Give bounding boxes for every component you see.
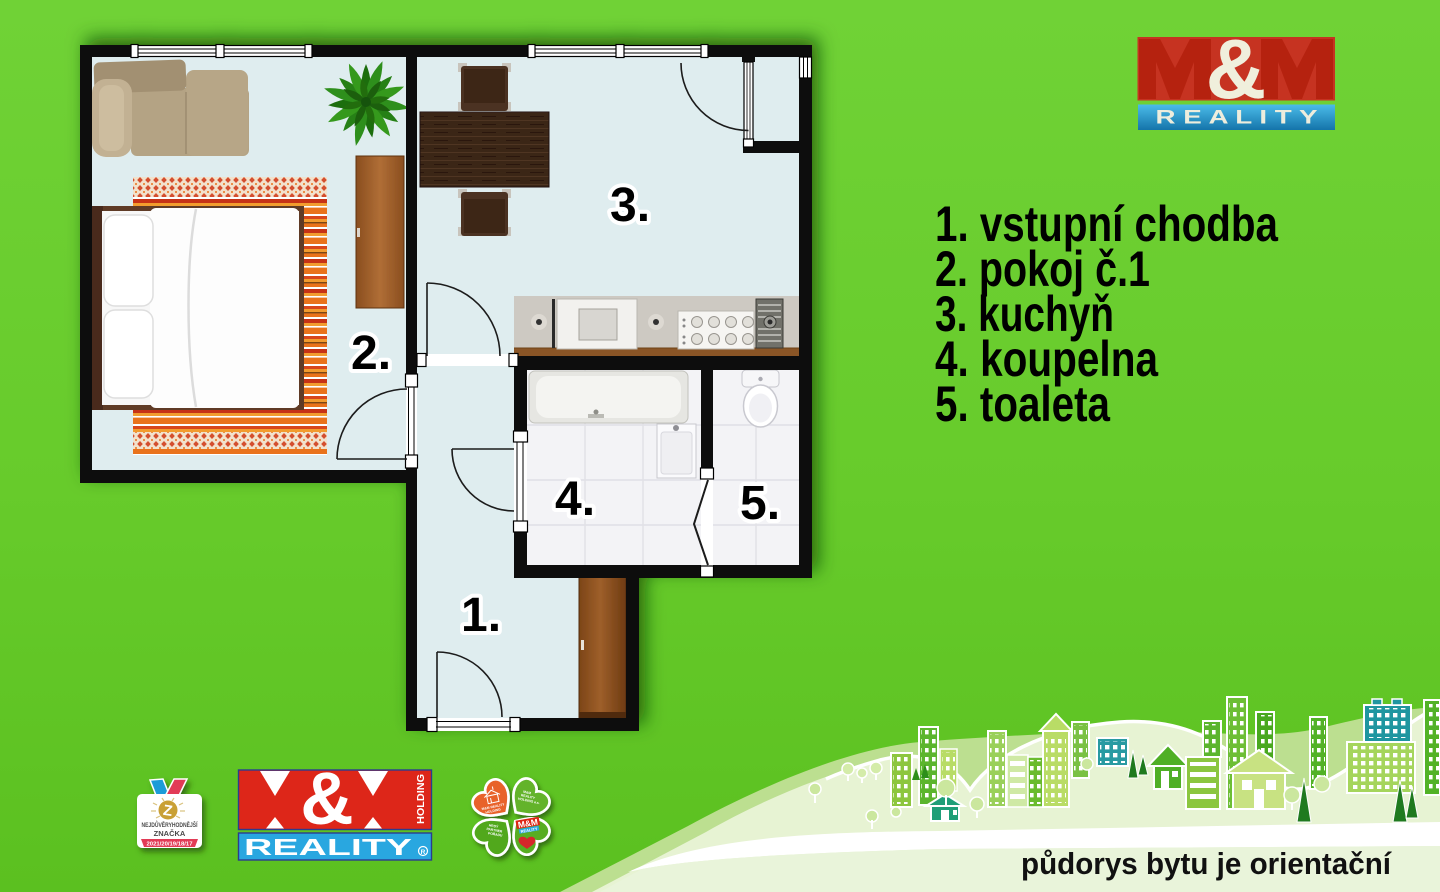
svg-text:3.: 3. (610, 179, 650, 232)
svg-text:2021/20/19/18/17: 2021/20/19/18/17 (147, 842, 193, 848)
svg-text:půdorys bytu je orientační: půdorys bytu je orientační (1021, 846, 1392, 881)
svg-text:R: R (421, 849, 426, 856)
svg-text:&: & (1206, 22, 1267, 116)
svg-text:1.: 1. (461, 589, 501, 642)
svg-text:R E A L I T Y: R E A L I T Y (1156, 108, 1318, 129)
svg-text:REALITY: REALITY (244, 834, 412, 860)
svg-text:5. toaleta: 5. toaleta (935, 376, 1111, 432)
svg-text:4.: 4. (555, 473, 595, 526)
svg-text:2.: 2. (351, 327, 391, 380)
svg-text:ZNAČKA: ZNAČKA (154, 829, 186, 838)
svg-text:&: & (300, 757, 353, 840)
svg-text:5.: 5. (740, 477, 780, 530)
svg-text:NEJDŮVĚRYHODNĚJŠÍ: NEJDŮVĚRYHODNĚJŠÍ (142, 821, 198, 829)
svg-text:HOLDING: HOLDING (416, 774, 427, 824)
